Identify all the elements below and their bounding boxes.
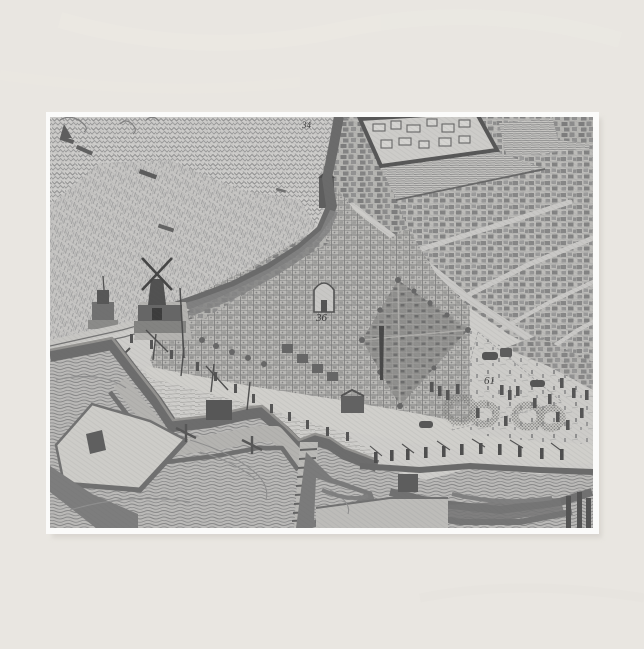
- svg-text:34: 34: [301, 120, 312, 130]
- svg-text:61: 61: [484, 375, 495, 387]
- svg-text:36: 36: [315, 312, 328, 324]
